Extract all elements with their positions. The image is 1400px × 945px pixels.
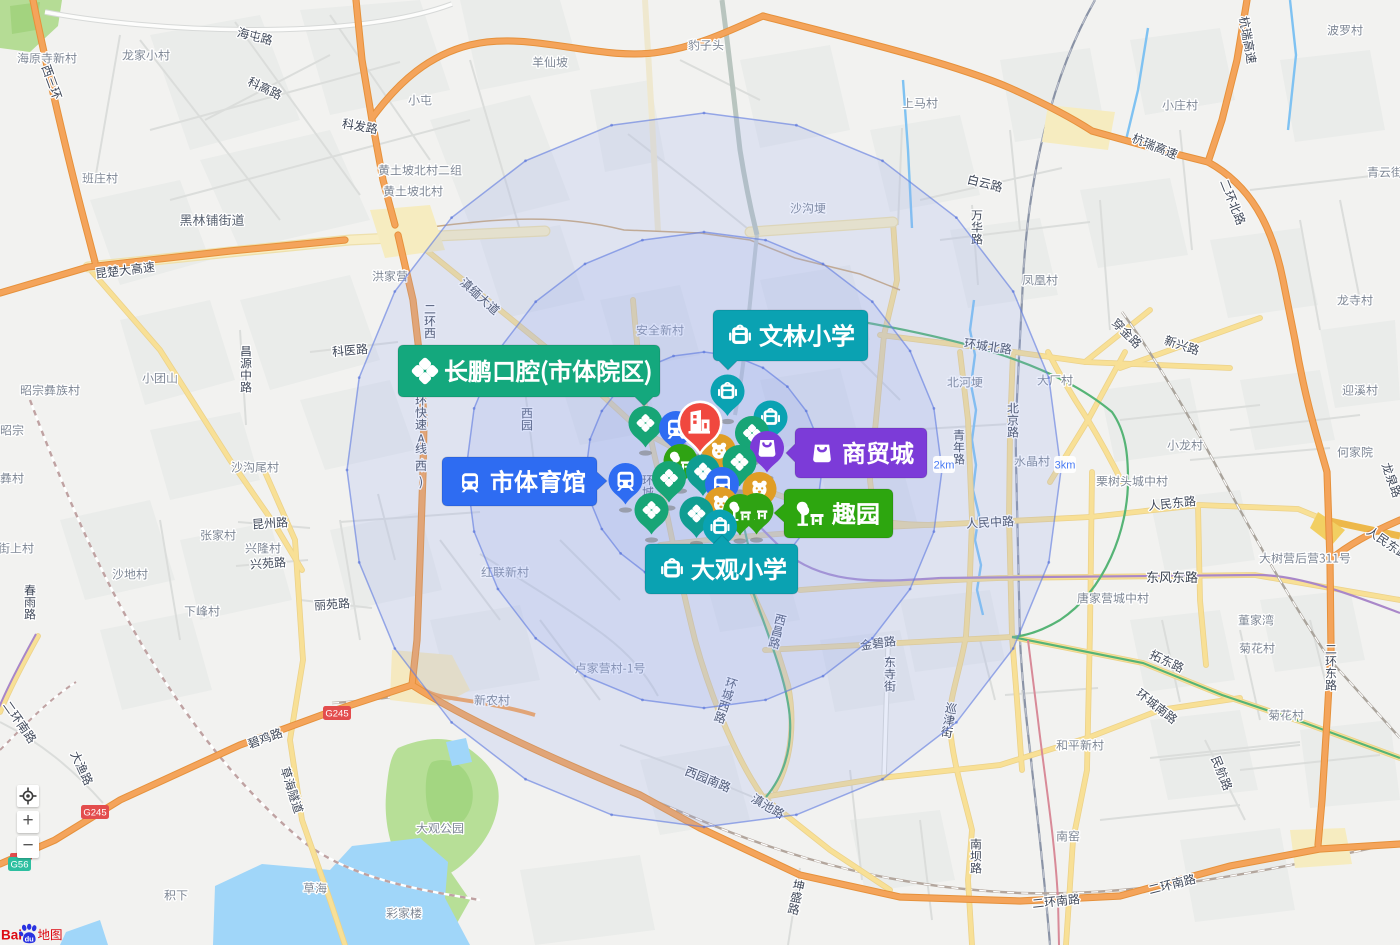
svg-text:2km: 2km xyxy=(934,460,955,472)
svg-text:G245: G245 xyxy=(83,808,106,819)
svg-text:Bai: Bai xyxy=(1,928,22,943)
svg-text:3km: 3km xyxy=(1055,460,1076,472)
svg-text:du: du xyxy=(25,935,35,944)
svg-text:G56: G56 xyxy=(11,860,29,871)
svg-text:G245: G245 xyxy=(325,709,348,720)
